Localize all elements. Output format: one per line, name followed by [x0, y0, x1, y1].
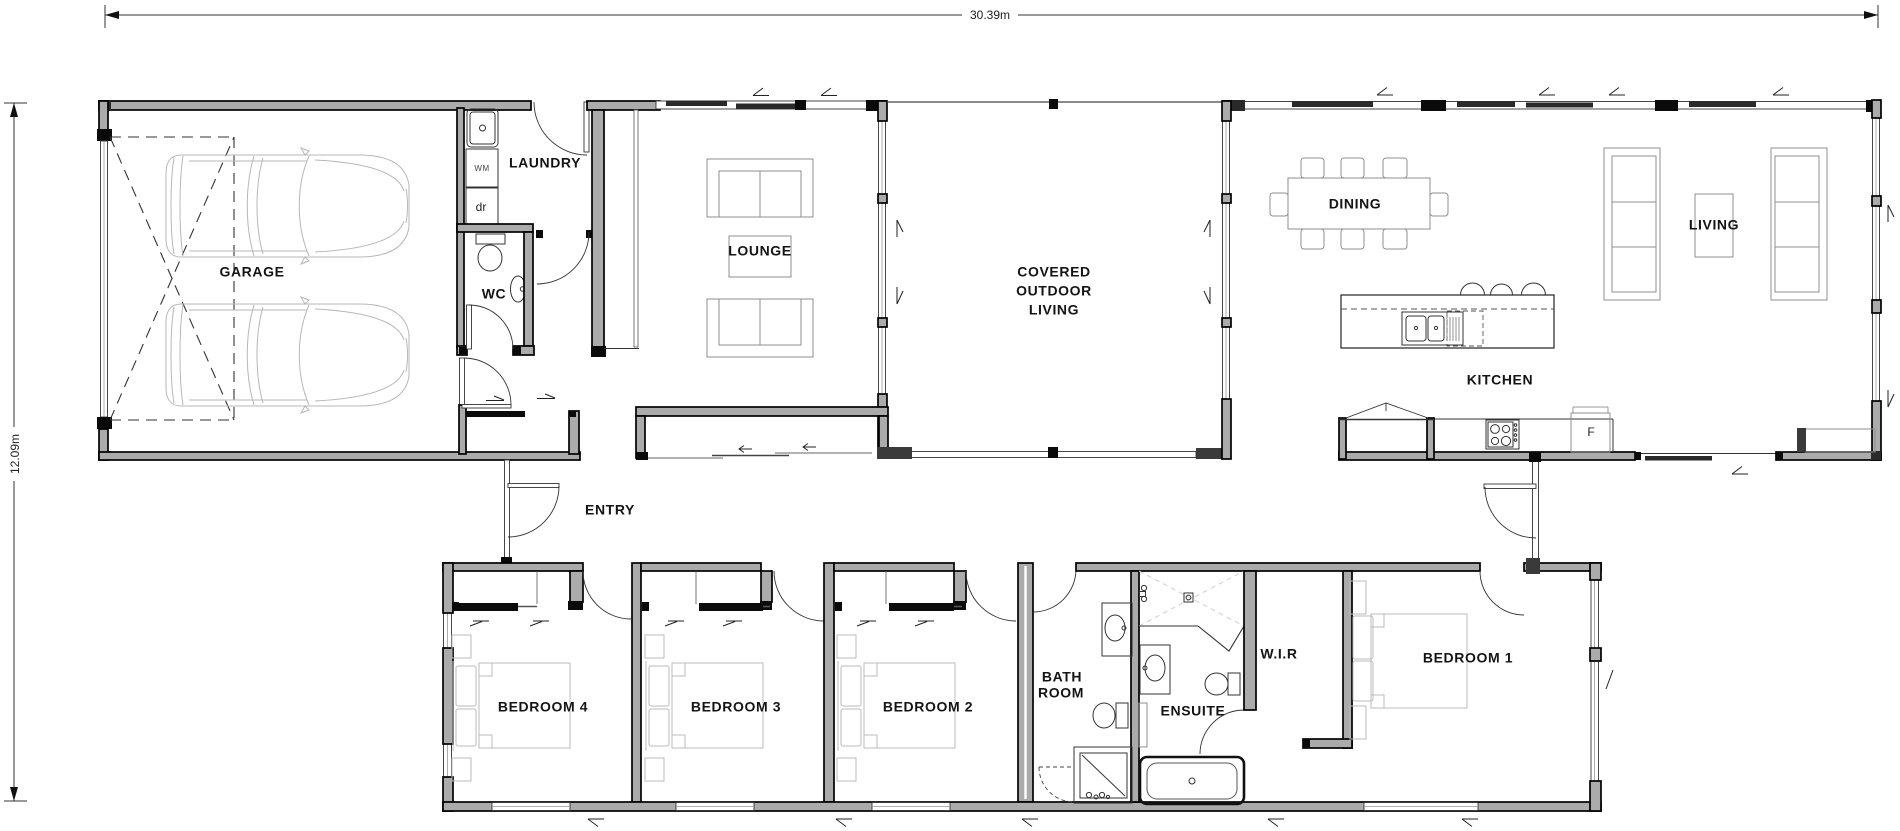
- svg-text:dr: dr: [476, 200, 487, 214]
- svg-text:COVERED: COVERED: [1017, 264, 1090, 280]
- svg-text:ENSUITE: ENSUITE: [1161, 703, 1226, 719]
- svg-text:30.39m: 30.39m: [970, 8, 1010, 22]
- svg-text:OUTDOOR: OUTDOOR: [1016, 283, 1092, 299]
- svg-text:F: F: [1587, 425, 1594, 439]
- svg-text:LOUNGE: LOUNGE: [728, 243, 792, 259]
- svg-text:BATH: BATH: [1042, 669, 1082, 685]
- svg-text:GARAGE: GARAGE: [219, 264, 284, 280]
- svg-text:BEDROOM 4: BEDROOM 4: [498, 699, 588, 715]
- svg-text:BEDROOM 3: BEDROOM 3: [691, 699, 781, 715]
- svg-text:ROOM: ROOM: [1038, 685, 1084, 701]
- svg-text:LAUNDRY: LAUNDRY: [509, 155, 581, 171]
- svg-text:LIVING: LIVING: [1689, 217, 1739, 233]
- svg-text:WC: WC: [482, 286, 507, 302]
- svg-text:WM: WM: [474, 164, 489, 173]
- svg-text:LIVING: LIVING: [1029, 302, 1079, 318]
- svg-text:DINING: DINING: [1329, 196, 1382, 212]
- svg-text:KITCHEN: KITCHEN: [1467, 372, 1533, 388]
- svg-text:12.09m: 12.09m: [8, 434, 22, 474]
- svg-text:W.I.R: W.I.R: [1260, 646, 1297, 662]
- svg-text:BEDROOM 2: BEDROOM 2: [883, 699, 973, 715]
- svg-text:BEDROOM 1: BEDROOM 1: [1423, 650, 1513, 666]
- svg-text:ENTRY: ENTRY: [585, 502, 635, 518]
